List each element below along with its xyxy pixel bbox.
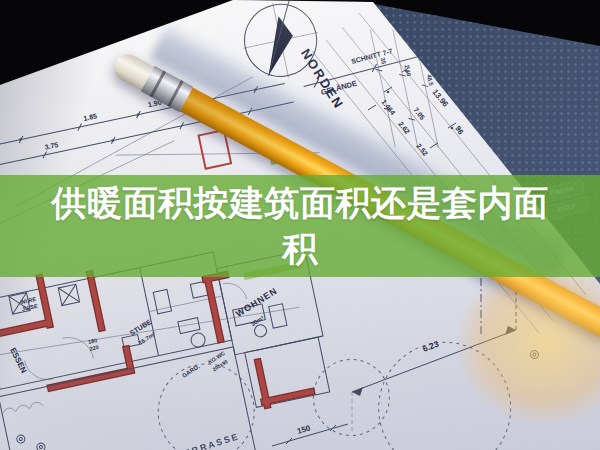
room-area-stube: 16.7m² (137, 331, 156, 346)
dimension-label: 2.62 (397, 120, 411, 135)
dimension-label: 35 (379, 57, 386, 65)
headline-line2: 积 (282, 226, 318, 272)
dimension-label: 1.464 (380, 98, 397, 116)
dimension-label: 3.75 (44, 141, 59, 151)
cover-photo: Pause Infor NORDEN (0, 0, 600, 450)
room-label-terrasse: TERRASSE (176, 431, 241, 450)
dimension-label: 7.05 (412, 106, 426, 121)
dimension-label: 96 (453, 124, 465, 136)
dimension-label: 1.85 (83, 112, 98, 122)
dimension-label: 220 (89, 344, 99, 352)
room-label-gard: GARD. (181, 363, 201, 379)
headline-line1: 供暖面积按建筑面积还是套内面 (52, 180, 549, 226)
dimension-label: 150 (296, 423, 312, 435)
headline-banner: 供暖面积按建筑面积还是套内面 积 (0, 175, 600, 277)
